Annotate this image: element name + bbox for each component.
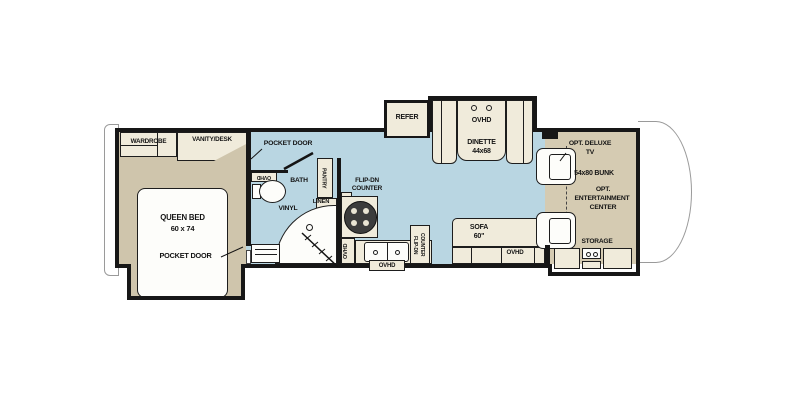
kitchen-flip-counter-right-label-2: COUNTER [419, 228, 424, 262]
bath-label: BATH [284, 178, 314, 185]
bed-slide-wall-left [127, 264, 131, 300]
sofa-label: SOFA [456, 224, 502, 231]
dinette-slide-wall-top [428, 96, 537, 100]
passenger-seat [536, 212, 576, 249]
toilet-bowl [259, 180, 286, 203]
dinette-ovhd-label: OVHD [458, 117, 505, 124]
entry-step-lower [582, 261, 601, 269]
entry-steps [582, 248, 601, 259]
bedroom-pocket-door-panel [246, 250, 251, 264]
kitchen-flip-counter-label-1: FLIP-DN [344, 178, 390, 184]
sofa-entry-stub [545, 245, 550, 268]
wardrobe-label: WARDROBE [120, 139, 177, 145]
shower-drain [306, 224, 313, 231]
opt-deluxe-tv-label-1: OPT. DELUXE [556, 141, 624, 148]
sofa-ovhd-strip [452, 247, 545, 264]
stove-icon [344, 201, 377, 234]
bunk-label: 54x80 BUNK [553, 170, 635, 177]
rv-floorplan: WARDROBE VANITY/DESK QUEEN BED 60 x 74 P… [0, 0, 800, 400]
dinette-size-label: 44x68 [455, 148, 508, 155]
bed-slide-wall-bottom [127, 296, 245, 300]
kitchen-flip-counter-label-2: COUNTER [344, 186, 390, 192]
wall-corner-block [542, 128, 558, 139]
bed-slide-wall-right [241, 264, 245, 300]
vanity-desk-label: VANITY/DESK [179, 137, 245, 143]
bedroom-bath-wall [246, 132, 251, 246]
bath-top-wall [251, 170, 288, 173]
dinette-label: DINETTE [455, 139, 508, 146]
queen-bed-size-label: 60 x 74 [142, 225, 223, 233]
bath-kitchen-wall [337, 158, 341, 264]
sofa-ovhd-label: OVHD [500, 250, 530, 256]
linen-label: LINEN [306, 200, 336, 206]
bath-ovhd-label: OVHD [251, 174, 277, 179]
queen-bed [137, 188, 228, 298]
entertainment-label-1: OPT. [570, 187, 636, 194]
entertainment-label-3: CENTER [570, 205, 636, 212]
opt-deluxe-tv-label-2: TV [556, 150, 624, 157]
sofa-size-label: 60" [456, 233, 502, 240]
vinyl-label: VINYL [272, 206, 304, 213]
storage-cabinet-right [603, 248, 632, 269]
kitchen-flip-counter-right-label-1: FLIP-DN [412, 228, 417, 262]
queen-bed-label: QUEEN BED [142, 214, 223, 222]
front-cap-outline [638, 121, 692, 263]
kitchen-sink [364, 242, 409, 262]
storage-cabinet-left [554, 248, 580, 269]
wall-rear [115, 128, 119, 268]
pantry-label: PANTRY [320, 161, 325, 195]
storage-label: STORAGE [572, 239, 622, 246]
wall-bottom-entry [548, 272, 640, 276]
dinette-slide-wall-right [533, 96, 537, 132]
dinette-slide-wall-left [428, 96, 432, 132]
bath-pocket-door-label: POCKET DOOR [256, 141, 320, 148]
bedroom-pocket-door-label: POCKET DOOR [148, 252, 223, 259]
kitchen-ovhd-wall-label: OVHD [344, 239, 350, 264]
kitchen-ovhd-sink-label: OVHD [369, 263, 405, 269]
bath-fixture [251, 244, 280, 263]
refer-label: REFER [386, 114, 428, 121]
dinette-bench-right [506, 100, 533, 164]
dinette-bench-left [432, 100, 457, 164]
entertainment-label-2: ENTERTAINMENT [564, 196, 640, 203]
